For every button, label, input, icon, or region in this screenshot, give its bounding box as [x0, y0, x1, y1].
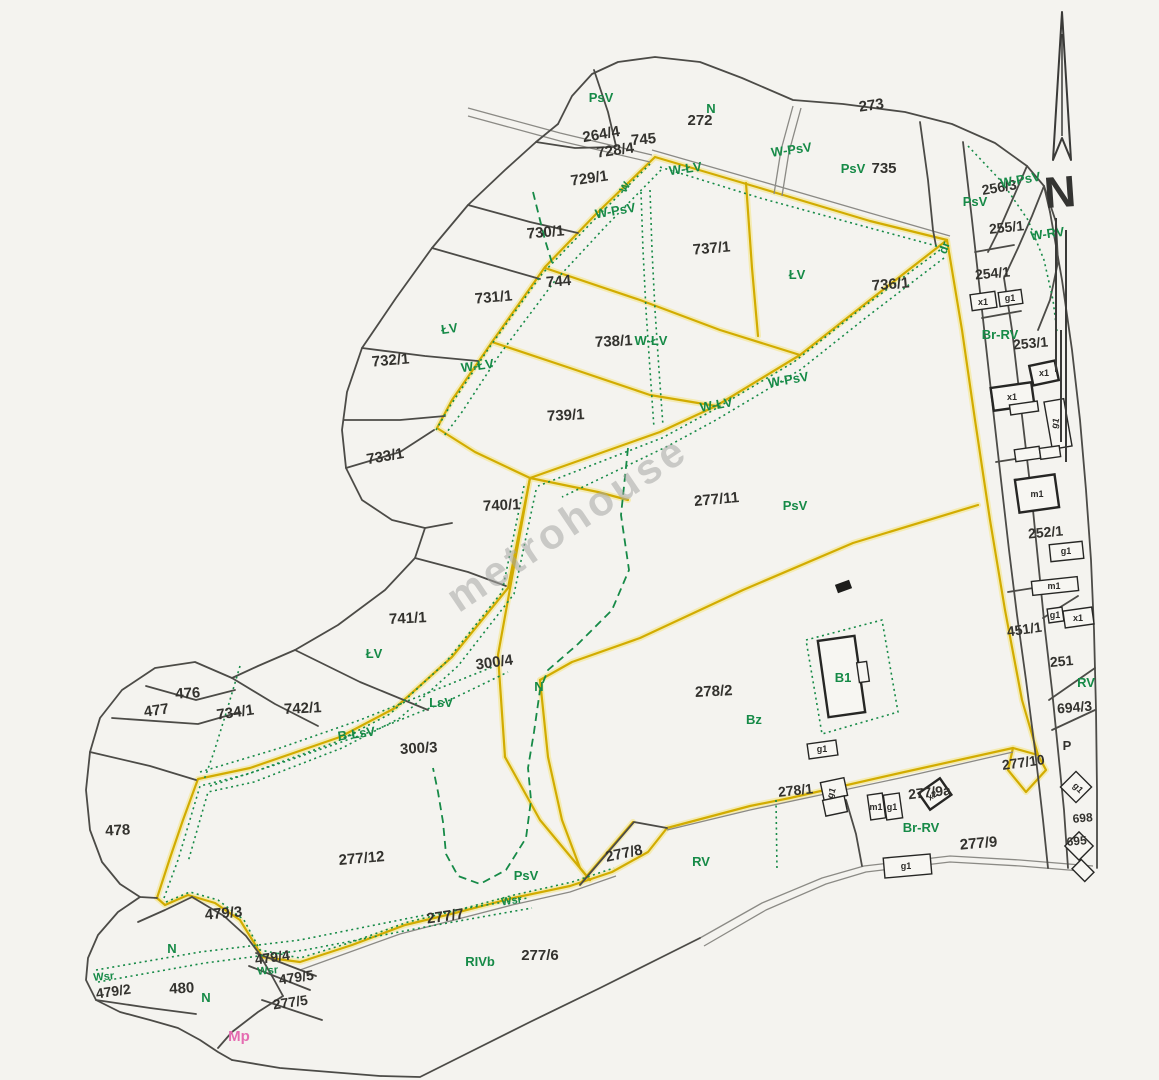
building-label: g1	[1061, 546, 1072, 556]
building-label: x1	[1073, 613, 1083, 623]
landuse-label: ŁV	[440, 320, 459, 337]
landuse-label: ŁV	[789, 267, 806, 282]
landuse-label: PsV	[514, 868, 539, 883]
parcel-label: 745	[630, 130, 656, 149]
landuse-label: Bz	[746, 712, 762, 727]
building-label: g1	[901, 861, 912, 871]
landuse-label: N	[201, 990, 210, 1005]
building-label: m1	[1047, 581, 1060, 591]
parcel-label: 736/1	[871, 274, 910, 294]
landuse-label: PsV	[783, 498, 808, 513]
landuse-label: Br-RV	[982, 327, 1019, 342]
building-label: x1	[1007, 392, 1017, 402]
landuse-label: PsV	[963, 194, 988, 209]
parcel-label: 730/1	[526, 222, 565, 242]
landuse-label: N	[706, 101, 715, 116]
parcel-label: 480	[169, 979, 195, 997]
parcel-label: 478	[105, 821, 131, 839]
parcel-label: 732/1	[371, 350, 410, 370]
landuse-label: N	[167, 941, 176, 956]
parcel-label: 476	[175, 684, 201, 702]
parcel-label: P	[1063, 738, 1072, 753]
parcel-label: 740/1	[483, 496, 521, 515]
parcel-label: 694/3	[1056, 698, 1093, 717]
parcel-label: 252/1	[1027, 523, 1064, 542]
building-label: g1	[1005, 293, 1016, 303]
parcel-label: 731/1	[474, 287, 513, 307]
landuse-label: ŁV	[366, 646, 383, 661]
parcel-label: 277/9	[959, 833, 998, 853]
parcel-label: 277/6	[521, 947, 559, 964]
landuse-label: Br-RV	[903, 820, 940, 835]
parcel-label: 273	[858, 95, 885, 115]
landuse-label: PsV	[589, 90, 614, 105]
landuse-label: RIVb	[465, 954, 495, 969]
building-label: m1	[869, 802, 882, 812]
cadastral-map-canvas: x1g1x1x1g1m1g1m1g1x1g1g1m1g1x2g1g1264/42…	[0, 0, 1159, 1080]
building	[1014, 446, 1040, 461]
parcel-label: 251	[1049, 652, 1074, 670]
landuse-label: LsV	[429, 695, 453, 710]
parcel-label: 479/3	[204, 903, 243, 923]
parcel-label: 742/1	[284, 699, 322, 718]
landuse-label: Wsr	[257, 964, 279, 978]
north-letter: N	[1042, 167, 1077, 218]
parcel-label: 698	[1072, 810, 1093, 826]
cadastral-map-page: x1g1x1x1g1m1g1m1g1x1g1g1m1g1x2g1g1264/42…	[0, 0, 1159, 1080]
landuse-label: W-ŁV	[635, 333, 668, 348]
landuse-label: PsV	[841, 161, 866, 176]
landuse-label: RV	[692, 854, 710, 869]
landuse-label: N	[534, 679, 543, 694]
building	[1039, 446, 1060, 460]
building-label: x1	[978, 297, 988, 307]
parcel-label: 735	[871, 160, 896, 177]
building-label: x1	[1039, 368, 1049, 378]
building-label: g1	[1050, 610, 1061, 620]
parcel-label: 695	[1066, 833, 1087, 849]
parcel-label: 477	[143, 700, 170, 720]
parcel-label: 278/2	[695, 682, 733, 701]
parcel-label: 254/1	[974, 264, 1011, 283]
building-label: m1	[1030, 489, 1043, 499]
building-label: g1	[887, 802, 898, 812]
building	[857, 661, 870, 682]
parcel-label: 744	[545, 272, 572, 291]
parcel-label: 737/1	[692, 238, 731, 258]
landuse-label: RV	[1077, 675, 1095, 690]
building-label: g1	[817, 744, 828, 754]
landuse-label: B1	[835, 670, 852, 685]
parcel-label: 738/1	[595, 332, 633, 351]
parcel-label: 300/3	[400, 739, 438, 758]
landuse-label: Wsr	[93, 970, 115, 984]
parcel-label: 741/1	[389, 609, 427, 628]
map-annotation-pink: Mp	[228, 1028, 250, 1045]
parcel-label: 739/1	[547, 406, 585, 425]
